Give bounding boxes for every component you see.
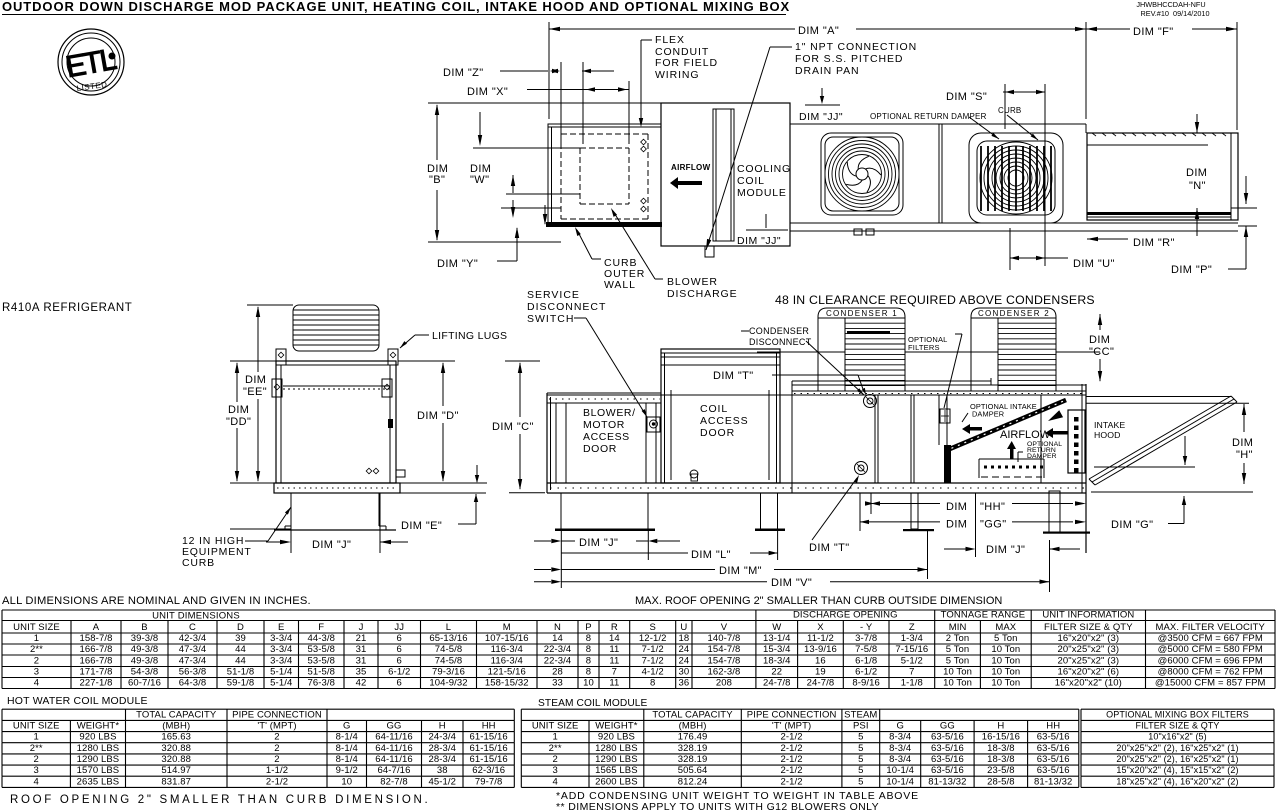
svg-text:STEAM: STEAM — [844, 709, 877, 720]
svg-text:2-1/2: 2-1/2 — [781, 776, 803, 787]
svg-text:6: 6 — [397, 644, 402, 655]
svg-text:5 Ton: 5 Ton — [946, 656, 970, 667]
svg-text:5: 5 — [858, 765, 863, 776]
svg-text:10-1/4: 10-1/4 — [886, 765, 914, 776]
svg-text:16: 16 — [815, 656, 826, 667]
svg-text:H: H — [439, 721, 446, 732]
svg-text:"EE": "EE" — [243, 386, 267, 398]
svg-text:(MBH): (MBH) — [679, 721, 707, 732]
svg-text:3-7/8: 3-7/8 — [855, 633, 877, 644]
svg-text:"CC": "CC" — [1089, 346, 1114, 358]
svg-text:TOTAL CAPACITY: TOTAL CAPACITY — [136, 709, 217, 720]
svg-text:920 LBS: 920 LBS — [79, 732, 116, 743]
svg-text:65-13/16: 65-13/16 — [429, 633, 467, 644]
svg-text:1280 LBS: 1280 LBS — [77, 743, 120, 754]
svg-text:1290 LBS: 1290 LBS — [595, 754, 638, 765]
svg-text:6: 6 — [397, 678, 402, 689]
svg-text:D: D — [237, 622, 244, 633]
svg-text:63-5/16: 63-5/16 — [931, 754, 964, 765]
svg-text:53-5/8: 53-5/8 — [307, 656, 335, 667]
svg-text:DIM "J": DIM "J" — [579, 537, 618, 549]
svg-text:C: C — [189, 622, 196, 633]
svg-text:2: 2 — [34, 754, 39, 765]
svg-text:2-1/2: 2-1/2 — [781, 743, 803, 754]
svg-text:CURB: CURB — [998, 106, 1021, 115]
svg-text:CONDENSER 1: CONDENSER 1 — [826, 309, 898, 318]
svg-text:28-3/4: 28-3/4 — [428, 743, 456, 754]
svg-text:2600 LBS: 2600 LBS — [595, 776, 638, 787]
svg-text:1-1/8: 1-1/8 — [901, 678, 923, 689]
svg-text:DOOR: DOOR — [700, 427, 735, 439]
svg-text:45-1/2: 45-1/2 — [428, 776, 456, 787]
svg-text:5: 5 — [858, 732, 863, 743]
svg-text:8-9/16: 8-9/16 — [852, 678, 880, 689]
svg-text:11: 11 — [609, 644, 619, 655]
svg-text:7: 7 — [612, 667, 617, 678]
svg-text:1: 1 — [34, 633, 39, 644]
svg-text:8-3/4: 8-3/4 — [889, 754, 911, 765]
svg-text:18-3/8: 18-3/8 — [987, 743, 1015, 754]
svg-text:227-1/8: 227-1/8 — [80, 678, 113, 689]
svg-text:PSI: PSI — [853, 721, 869, 732]
svg-text:LIFTING LUGS: LIFTING LUGS — [432, 330, 507, 342]
svg-text:E: E — [278, 622, 284, 633]
svg-text:16"x20"x2" (10): 16"x20"x2" (10) — [1055, 678, 1122, 689]
svg-text:UNIT DIMENSIONS: UNIT DIMENSIONS — [152, 611, 240, 622]
svg-text:MAX. FILTER VELOCITY: MAX. FILTER VELOCITY — [1155, 622, 1265, 633]
svg-text:16"x20"x2" (3): 16"x20"x2" (3) — [1058, 633, 1120, 644]
svg-text:8-1/4: 8-1/4 — [336, 754, 358, 765]
svg-text:9-1/2: 9-1/2 — [336, 765, 358, 776]
svg-text:1570 LBS: 1570 LBS — [77, 765, 120, 776]
svg-text:81-13/32: 81-13/32 — [928, 776, 966, 787]
svg-text:'T' (MPT): 'T' (MPT) — [257, 721, 296, 732]
svg-text:30: 30 — [678, 667, 689, 678]
svg-text:P: P — [585, 622, 591, 633]
svg-text:@8000 CFM = 762 FPM: @8000 CFM = 762 FPM — [1158, 667, 1263, 678]
svg-text:18-3/8: 18-3/8 — [987, 754, 1015, 765]
svg-text:(MBH): (MBH) — [162, 721, 190, 732]
svg-text:4: 4 — [34, 776, 39, 787]
svg-text:INTAKE: INTAKE — [1094, 420, 1125, 430]
svg-text:CONDENSER: CONDENSER — [749, 326, 809, 336]
svg-text:158-7/8: 158-7/8 — [80, 633, 113, 644]
svg-text:WEIGHT*: WEIGHT* — [77, 721, 120, 732]
svg-text:DIM "T": DIM "T" — [809, 542, 850, 554]
svg-text:24-7/8: 24-7/8 — [763, 678, 791, 689]
svg-text:S: S — [649, 622, 655, 633]
svg-text:53-5/8: 53-5/8 — [307, 644, 335, 655]
svg-text:DIM "R": DIM "R" — [1133, 237, 1175, 249]
svg-text:X: X — [817, 622, 824, 633]
svg-text:39-3/8: 39-3/8 — [131, 633, 159, 644]
svg-text:2-1/2: 2-1/2 — [781, 732, 803, 743]
svg-text:38: 38 — [437, 765, 448, 776]
svg-text:1: 1 — [34, 732, 39, 743]
svg-text:7-15/16: 7-15/16 — [895, 644, 928, 655]
svg-text:166-7/8: 166-7/8 — [80, 656, 113, 667]
svg-text:20"x25"x2" (3): 20"x25"x2" (3) — [1058, 644, 1120, 655]
svg-text:Z: Z — [909, 622, 915, 633]
svg-text:FILTER SIZE & QTY: FILTER SIZE & QTY — [1135, 721, 1219, 731]
svg-text:3-3/4: 3-3/4 — [270, 644, 292, 655]
svg-text:154-7/8: 154-7/8 — [707, 644, 740, 655]
svg-text:1-3/4: 1-3/4 — [901, 633, 923, 644]
svg-text:DIM: DIM — [228, 404, 249, 416]
svg-text:WIRING: WIRING — [655, 69, 699, 81]
svg-text:2-1/2: 2-1/2 — [781, 765, 803, 776]
svg-text:7-5/8: 7-5/8 — [855, 644, 877, 655]
svg-text:ALL DIMENSIONS ARE NOMINAL AND: ALL DIMENSIONS ARE NOMINAL AND GIVEN IN … — [2, 595, 311, 607]
svg-text:OPTIONAL MIXING BOX FILTERS: OPTIONAL MIXING BOX FILTERS — [1106, 709, 1249, 719]
svg-text:81-13/32: 81-13/32 — [1034, 776, 1072, 787]
svg-text:1: 1 — [552, 732, 557, 743]
svg-text:13-1/4: 13-1/4 — [763, 633, 791, 644]
svg-text:2-1/2: 2-1/2 — [266, 776, 288, 787]
svg-text:MOTOR: MOTOR — [583, 419, 625, 431]
svg-text:328.19: 328.19 — [678, 754, 708, 765]
svg-text:GG: GG — [387, 721, 402, 732]
svg-text:DRAIN PAN: DRAIN PAN — [795, 65, 860, 77]
svg-text:- Y: - Y — [860, 622, 873, 633]
svg-text:@15000 CFM = 857 FPM: @15000 CFM = 857 FPM — [1155, 678, 1266, 689]
svg-text:154-7/8: 154-7/8 — [707, 656, 740, 667]
svg-text:54-3/8: 54-3/8 — [131, 667, 159, 678]
svg-text:F: F — [318, 622, 324, 633]
svg-text:2: 2 — [34, 656, 39, 667]
svg-text:SERVICE: SERVICE — [527, 289, 580, 301]
svg-text:104-9/32: 104-9/32 — [429, 678, 467, 689]
svg-text:"H": "H" — [1236, 449, 1253, 461]
svg-text:44-3/8: 44-3/8 — [307, 633, 335, 644]
svg-text:DIM "X": DIM "X" — [467, 86, 508, 98]
svg-text:DIM: DIM — [946, 501, 967, 513]
svg-text:DIM "S": DIM "S" — [946, 91, 987, 103]
svg-text:35: 35 — [356, 667, 367, 678]
svg-text:8: 8 — [586, 667, 591, 678]
svg-text:39: 39 — [235, 633, 246, 644]
svg-text:7-1/2: 7-1/2 — [642, 644, 664, 655]
svg-text:24-3/4: 24-3/4 — [428, 732, 456, 743]
svg-text:328.19: 328.19 — [678, 743, 708, 754]
svg-text:166-7/8: 166-7/8 — [80, 644, 113, 655]
svg-text:UNIT SIZE: UNIT SIZE — [532, 721, 579, 732]
svg-text:10: 10 — [341, 776, 352, 787]
svg-text:2: 2 — [274, 743, 279, 754]
svg-text:COIL: COIL — [737, 175, 765, 187]
svg-text:8-3/4: 8-3/4 — [889, 732, 911, 743]
svg-text:28-5/8: 28-5/8 — [987, 776, 1015, 787]
svg-text:DISCHARGE OPENING: DISCHARGE OPENING — [793, 610, 898, 621]
svg-text:HH: HH — [482, 721, 496, 732]
svg-text:64-11/16: 64-11/16 — [375, 754, 413, 765]
svg-text:DIM "U": DIM "U" — [1073, 258, 1115, 270]
svg-text:G: G — [896, 721, 904, 732]
svg-text:12-1/2: 12-1/2 — [639, 633, 667, 644]
svg-text:BLOWER/: BLOWER/ — [583, 407, 636, 419]
svg-text:@3500 CFM = 667 FPM: @3500 CFM = 667 FPM — [1158, 633, 1263, 644]
svg-text:64-7/16: 64-7/16 — [378, 765, 411, 776]
svg-text:8: 8 — [586, 656, 591, 667]
svg-text:WALL: WALL — [604, 279, 636, 291]
svg-text:56-3/8: 56-3/8 — [179, 667, 207, 678]
svg-text:64-11/16: 64-11/16 — [375, 732, 413, 743]
svg-text:V: V — [721, 622, 728, 633]
svg-text:MAX. ROOF OPENING 2" SMALLER T: MAX. ROOF OPENING 2" SMALLER THAN CURB O… — [635, 595, 1002, 607]
svg-text:CURB: CURB — [182, 557, 215, 569]
svg-text:"W": "W" — [470, 174, 489, 186]
svg-text:@6000 CFM = 696 FPM: @6000 CFM = 696 FPM — [1158, 656, 1263, 667]
svg-text:8: 8 — [586, 633, 591, 644]
svg-text:DIM "J": DIM "J" — [986, 544, 1025, 556]
svg-text:OUTDOOR DOWN DISCHARGE MOD PAC: OUTDOOR DOWN DISCHARGE MOD PACKAGE UNIT,… — [2, 0, 790, 14]
svg-text:"GG": "GG" — [980, 519, 1007, 531]
svg-text:505.64: 505.64 — [678, 765, 708, 776]
svg-text:5: 5 — [858, 754, 863, 765]
svg-text:24: 24 — [678, 656, 689, 667]
svg-text:18: 18 — [678, 633, 689, 644]
svg-text:18"x25"x2" (4), 16"x20"x2" (2): 18"x25"x2" (4), 16"x20"x2" (2) — [1116, 776, 1238, 786]
svg-text:23-5/8: 23-5/8 — [987, 765, 1015, 776]
svg-text:JJ: JJ — [394, 622, 404, 633]
svg-text:STEAM COIL MODULE: STEAM COIL MODULE — [538, 698, 648, 709]
svg-text:14: 14 — [609, 633, 620, 644]
svg-text:7-1/2: 7-1/2 — [642, 656, 664, 667]
svg-text:42-3/4: 42-3/4 — [179, 633, 207, 644]
svg-text:7: 7 — [909, 667, 914, 678]
svg-text:G: G — [343, 721, 351, 732]
svg-text:5 Ton: 5 Ton — [946, 644, 970, 655]
svg-text:DIM "P": DIM "P" — [1171, 264, 1212, 276]
svg-text:10 Ton: 10 Ton — [991, 656, 1020, 667]
svg-text:171-7/8: 171-7/8 — [80, 667, 113, 678]
svg-text:A: A — [93, 622, 100, 633]
svg-text:116-3/4: 116-3/4 — [491, 656, 523, 667]
svg-text:121-5/16: 121-5/16 — [488, 667, 526, 678]
svg-text:REV.#10 09/14/2010: REV.#10 09/14/2010 — [1140, 9, 1209, 18]
svg-text:1280 LBS: 1280 LBS — [595, 743, 638, 754]
svg-text:5-1/2: 5-1/2 — [901, 656, 923, 667]
svg-text:514.97: 514.97 — [161, 765, 191, 776]
svg-text:20"x25"x2" (3): 20"x25"x2" (3) — [1058, 656, 1120, 667]
svg-text:47-3/4: 47-3/4 — [179, 656, 207, 667]
svg-text:15"x20"x2" (4), 15"x15"x2" (2): 15"x20"x2" (4), 15"x15"x2" (2) — [1116, 765, 1238, 775]
svg-text:107-15/16: 107-15/16 — [485, 633, 529, 644]
svg-text:J: J — [359, 622, 364, 633]
svg-text:22: 22 — [771, 667, 782, 678]
svg-text:DOOR: DOOR — [583, 443, 617, 455]
svg-text:TOTAL CAPACITY: TOTAL CAPACITY — [652, 709, 733, 720]
svg-text:31: 31 — [356, 656, 367, 667]
svg-text:49-3/8: 49-3/8 — [131, 656, 159, 667]
svg-text:6-1/8: 6-1/8 — [855, 656, 877, 667]
svg-text:21: 21 — [356, 633, 367, 644]
svg-text:140-7/8: 140-7/8 — [707, 633, 740, 644]
svg-text:H: H — [997, 721, 1004, 732]
svg-text:DIM: DIM — [1089, 334, 1110, 346]
svg-text:3-3/4: 3-3/4 — [270, 633, 292, 644]
svg-text:PIPE CONNECTION: PIPE CONNECTION — [747, 709, 837, 720]
svg-text:47-3/4: 47-3/4 — [179, 644, 207, 655]
svg-text:FOR FIELD: FOR FIELD — [655, 57, 718, 69]
svg-text:1-1/2: 1-1/2 — [266, 765, 288, 776]
svg-text:DISCONNECT: DISCONNECT — [527, 301, 606, 313]
svg-text:20"x25"x2" (2), 16"x25"x2" (1): 20"x25"x2" (2), 16"x25"x2" (1) — [1116, 743, 1238, 753]
svg-text:'T' (MPT): 'T' (MPT) — [772, 721, 811, 732]
svg-text:116-3/4: 116-3/4 — [491, 644, 523, 655]
svg-text:44: 44 — [235, 656, 246, 667]
svg-text:74-5/8: 74-5/8 — [435, 656, 463, 667]
svg-text:63-5/16: 63-5/16 — [1037, 743, 1070, 754]
svg-text:59-1/8: 59-1/8 — [227, 678, 255, 689]
svg-text:HOT WATER COIL MODULE: HOT WATER COIL MODULE — [7, 695, 148, 707]
svg-text:22-3/4: 22-3/4 — [544, 656, 572, 667]
svg-text:"DD": "DD" — [226, 416, 251, 428]
svg-text:2: 2 — [274, 754, 279, 765]
svg-text:U: U — [680, 622, 687, 633]
svg-text:DISCONNECT: DISCONNECT — [749, 337, 812, 347]
svg-text:5: 5 — [858, 776, 863, 787]
svg-text:5 Ton: 5 Ton — [994, 633, 1018, 644]
svg-text:49-3/8: 49-3/8 — [131, 644, 159, 655]
svg-text:5-1/4: 5-1/4 — [270, 678, 292, 689]
svg-text:4-1/2: 4-1/2 — [642, 667, 664, 678]
svg-text:3: 3 — [552, 765, 557, 776]
svg-text:6-1/2: 6-1/2 — [855, 667, 877, 678]
svg-text:"HH": "HH" — [980, 501, 1005, 513]
svg-text:2: 2 — [274, 732, 279, 743]
svg-text:OPTIONAL RETURN DAMPER: OPTIONAL RETURN DAMPER — [870, 112, 987, 121]
svg-text:4: 4 — [34, 678, 39, 689]
svg-text:FILTERS: FILTERS — [908, 343, 940, 352]
svg-text:61-15/16: 61-15/16 — [469, 732, 507, 743]
svg-text:64-11/16: 64-11/16 — [375, 743, 413, 754]
svg-text:28-3/4: 28-3/4 — [428, 754, 456, 765]
svg-text:@5000 CFM = 580 FPM: @5000 CFM = 580 FPM — [1158, 644, 1263, 655]
svg-text:10 Ton: 10 Ton — [943, 667, 972, 678]
svg-text:8: 8 — [586, 644, 591, 655]
svg-text:14: 14 — [552, 633, 563, 644]
svg-text:4: 4 — [552, 776, 557, 787]
svg-text:DAMPER: DAMPER — [972, 410, 1004, 419]
svg-text:DIM "J": DIM "J" — [312, 539, 351, 551]
svg-text:31: 31 — [356, 644, 367, 655]
svg-text:61-15/16: 61-15/16 — [469, 754, 507, 765]
svg-text:11: 11 — [609, 656, 619, 667]
svg-text:DIM "T": DIM "T" — [713, 370, 754, 382]
svg-text:60-7/16: 60-7/16 — [128, 678, 161, 689]
svg-text:10"x16"x2" (5): 10"x16"x2" (5) — [1148, 732, 1207, 742]
svg-text:WEIGHT*: WEIGHT* — [595, 721, 638, 732]
svg-text:6-1/2: 6-1/2 — [388, 667, 410, 678]
svg-text:1" NPT CONNECTION: 1" NPT CONNECTION — [795, 41, 917, 53]
svg-text:320.88: 320.88 — [161, 754, 191, 765]
svg-text:UNIT INFORMATION: UNIT INFORMATION — [1042, 610, 1134, 621]
svg-text:5-1/4: 5-1/4 — [270, 667, 292, 678]
svg-text:DIM "F": DIM "F" — [1133, 26, 1174, 38]
svg-text:"B": "B" — [429, 174, 445, 186]
svg-text:79-3/16: 79-3/16 — [432, 667, 465, 678]
svg-text:TONNAGE RANGE: TONNAGE RANGE — [941, 610, 1026, 621]
svg-text:ACCESS: ACCESS — [700, 415, 749, 427]
svg-text:** DIMENSIONS APPLY TO UNITS W: ** DIMENSIONS APPLY TO UNITS WITH G12 BL… — [556, 801, 879, 811]
svg-text:SWITCH: SWITCH — [527, 313, 574, 325]
svg-text:24-7/8: 24-7/8 — [807, 678, 835, 689]
svg-text:61-15/16: 61-15/16 — [469, 743, 507, 754]
svg-text:76-3/8: 76-3/8 — [307, 678, 335, 689]
svg-text:N: N — [554, 622, 561, 633]
svg-text:63-5/16: 63-5/16 — [931, 732, 964, 743]
svg-text:FILTER SIZE & QTY: FILTER SIZE & QTY — [1044, 622, 1133, 633]
svg-text:2-1/2: 2-1/2 — [781, 754, 803, 765]
svg-text:19: 19 — [815, 667, 826, 678]
svg-text:48 IN CLEARANCE REQUIRED ABOVE: 48 IN CLEARANCE REQUIRED ABOVE CONDENSER… — [775, 293, 1095, 307]
svg-text:DIM "M": DIM "M" — [719, 565, 762, 577]
svg-text:2635 LBS: 2635 LBS — [77, 776, 120, 787]
svg-text:MAX: MAX — [995, 622, 1016, 633]
svg-text:3: 3 — [34, 667, 39, 678]
svg-text:BLOWER: BLOWER — [667, 276, 718, 288]
svg-text:10 Ton: 10 Ton — [991, 678, 1020, 689]
svg-text:63-5/16: 63-5/16 — [1037, 732, 1070, 743]
svg-text:1565 LBS: 1565 LBS — [595, 765, 638, 776]
svg-text:8-3/4: 8-3/4 — [889, 743, 911, 754]
svg-text:51-1/8: 51-1/8 — [227, 667, 255, 678]
svg-text:B: B — [141, 622, 147, 633]
svg-text:AIRFLOW: AIRFLOW — [671, 163, 711, 172]
svg-text:M: M — [503, 622, 511, 633]
svg-text:DIM "A": DIM "A" — [798, 25, 839, 37]
svg-text:2 Ton: 2 Ton — [946, 633, 970, 644]
svg-text:DISCHARGE: DISCHARGE — [667, 288, 738, 300]
svg-text:MODULE: MODULE — [737, 187, 787, 199]
svg-text:MIN: MIN — [949, 622, 967, 633]
svg-text:165.63: 165.63 — [161, 732, 191, 743]
svg-text:L: L — [446, 622, 451, 633]
svg-text:2**: 2** — [549, 743, 562, 754]
svg-text:DIM "JJ": DIM "JJ" — [799, 111, 843, 123]
svg-text:DIM: DIM — [1232, 437, 1253, 449]
svg-text:82-7/8: 82-7/8 — [380, 776, 408, 787]
svg-text:16-15/16: 16-15/16 — [982, 732, 1020, 743]
svg-text:DIM "V": DIM "V" — [771, 577, 812, 589]
svg-text:812.24: 812.24 — [678, 776, 708, 787]
svg-text:13-9/16: 13-9/16 — [804, 644, 837, 655]
svg-text:162-3/8: 162-3/8 — [707, 667, 740, 678]
svg-text:2**: 2** — [30, 644, 43, 655]
svg-text:UNIT SIZE: UNIT SIZE — [13, 622, 60, 633]
svg-text:DIM "D": DIM "D" — [417, 410, 459, 422]
svg-text:W: W — [772, 622, 781, 633]
svg-text:18-3/4: 18-3/4 — [763, 656, 791, 667]
svg-text:158-15/32: 158-15/32 — [485, 678, 529, 689]
svg-text:DIM "G": DIM "G" — [1111, 519, 1153, 531]
svg-text:10 Ton: 10 Ton — [943, 678, 972, 689]
svg-text:2**: 2** — [30, 743, 43, 754]
svg-text:11-1/2: 11-1/2 — [807, 633, 834, 644]
svg-text:COOLING: COOLING — [737, 163, 791, 175]
svg-text:PIPE CONNECTION: PIPE CONNECTION — [232, 709, 322, 720]
svg-text:74-5/8: 74-5/8 — [435, 644, 463, 655]
svg-text:3: 3 — [34, 765, 39, 776]
svg-text:10: 10 — [583, 678, 594, 689]
svg-text:10-1/4: 10-1/4 — [886, 776, 914, 787]
svg-text:22-3/4: 22-3/4 — [544, 644, 572, 655]
svg-text:DIM "JJ": DIM "JJ" — [737, 235, 781, 247]
svg-text:R: R — [611, 622, 618, 633]
svg-text:FLEX: FLEX — [655, 34, 685, 46]
svg-text:10 Ton: 10 Ton — [991, 667, 1020, 678]
